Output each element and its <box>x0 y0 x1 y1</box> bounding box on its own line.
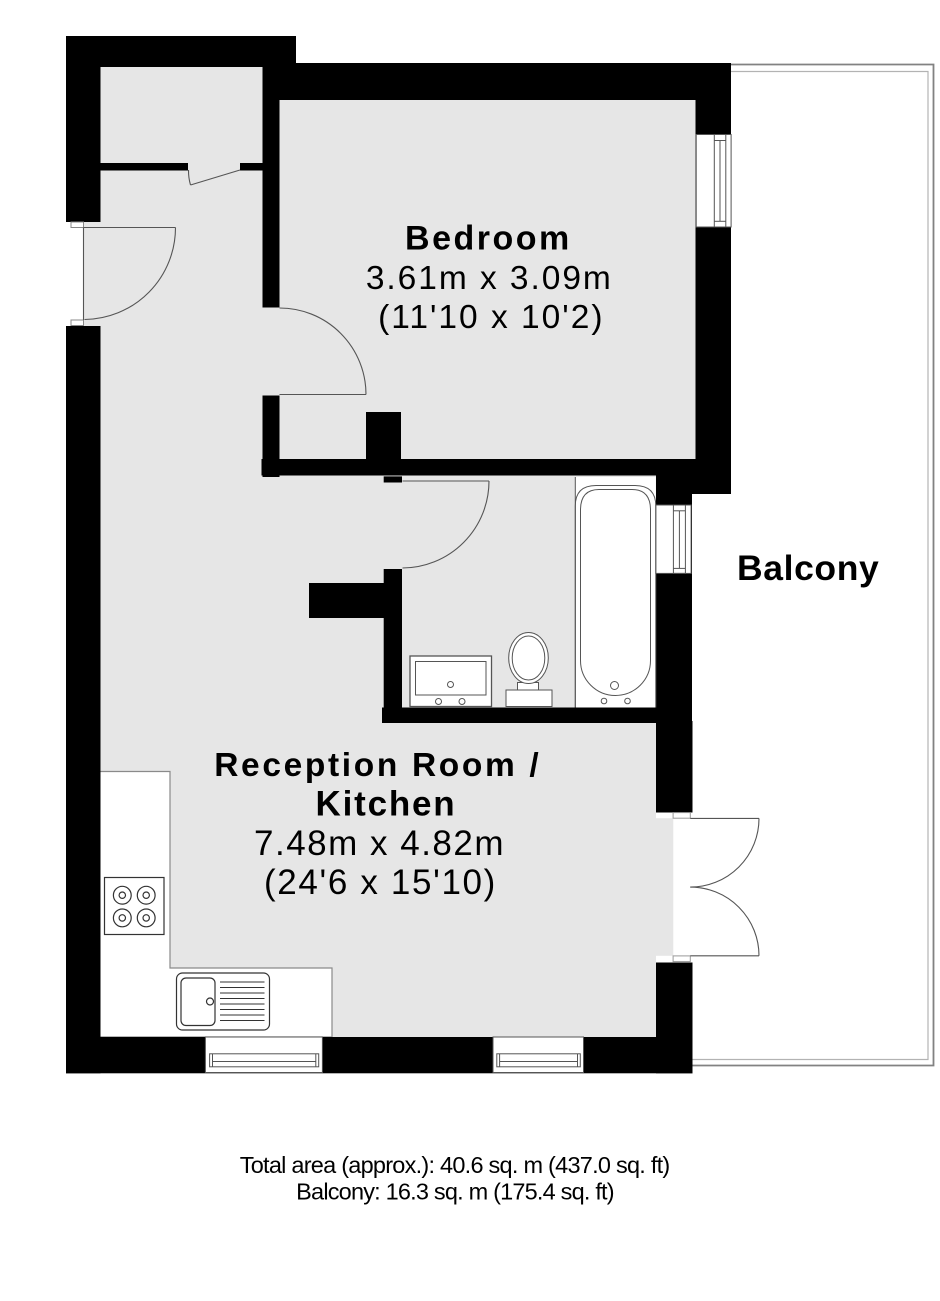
svg-text:(11'10 x 10'2): (11'10 x 10'2) <box>378 299 604 336</box>
svg-text:Total area (approx.): 40.6 sq.: Total area (approx.): 40.6 sq. m (437.0 … <box>240 1152 670 1178</box>
svg-text:Kitchen: Kitchen <box>316 785 457 824</box>
svg-text:Balcony: Balcony <box>737 548 879 588</box>
svg-text:Balcony: 16.3 sq. m (175.4 sq.: Balcony: 16.3 sq. m (175.4 sq. ft) <box>296 1179 614 1205</box>
svg-text:3.61m x 3.09m: 3.61m x 3.09m <box>366 260 613 297</box>
svg-text:(24'6 x 15'10): (24'6 x 15'10) <box>264 863 497 902</box>
svg-text:7.48m x 4.82m: 7.48m x 4.82m <box>254 824 505 863</box>
svg-text:Bedroom: Bedroom <box>405 220 572 258</box>
svg-text:Reception Room /: Reception Room / <box>214 747 541 784</box>
